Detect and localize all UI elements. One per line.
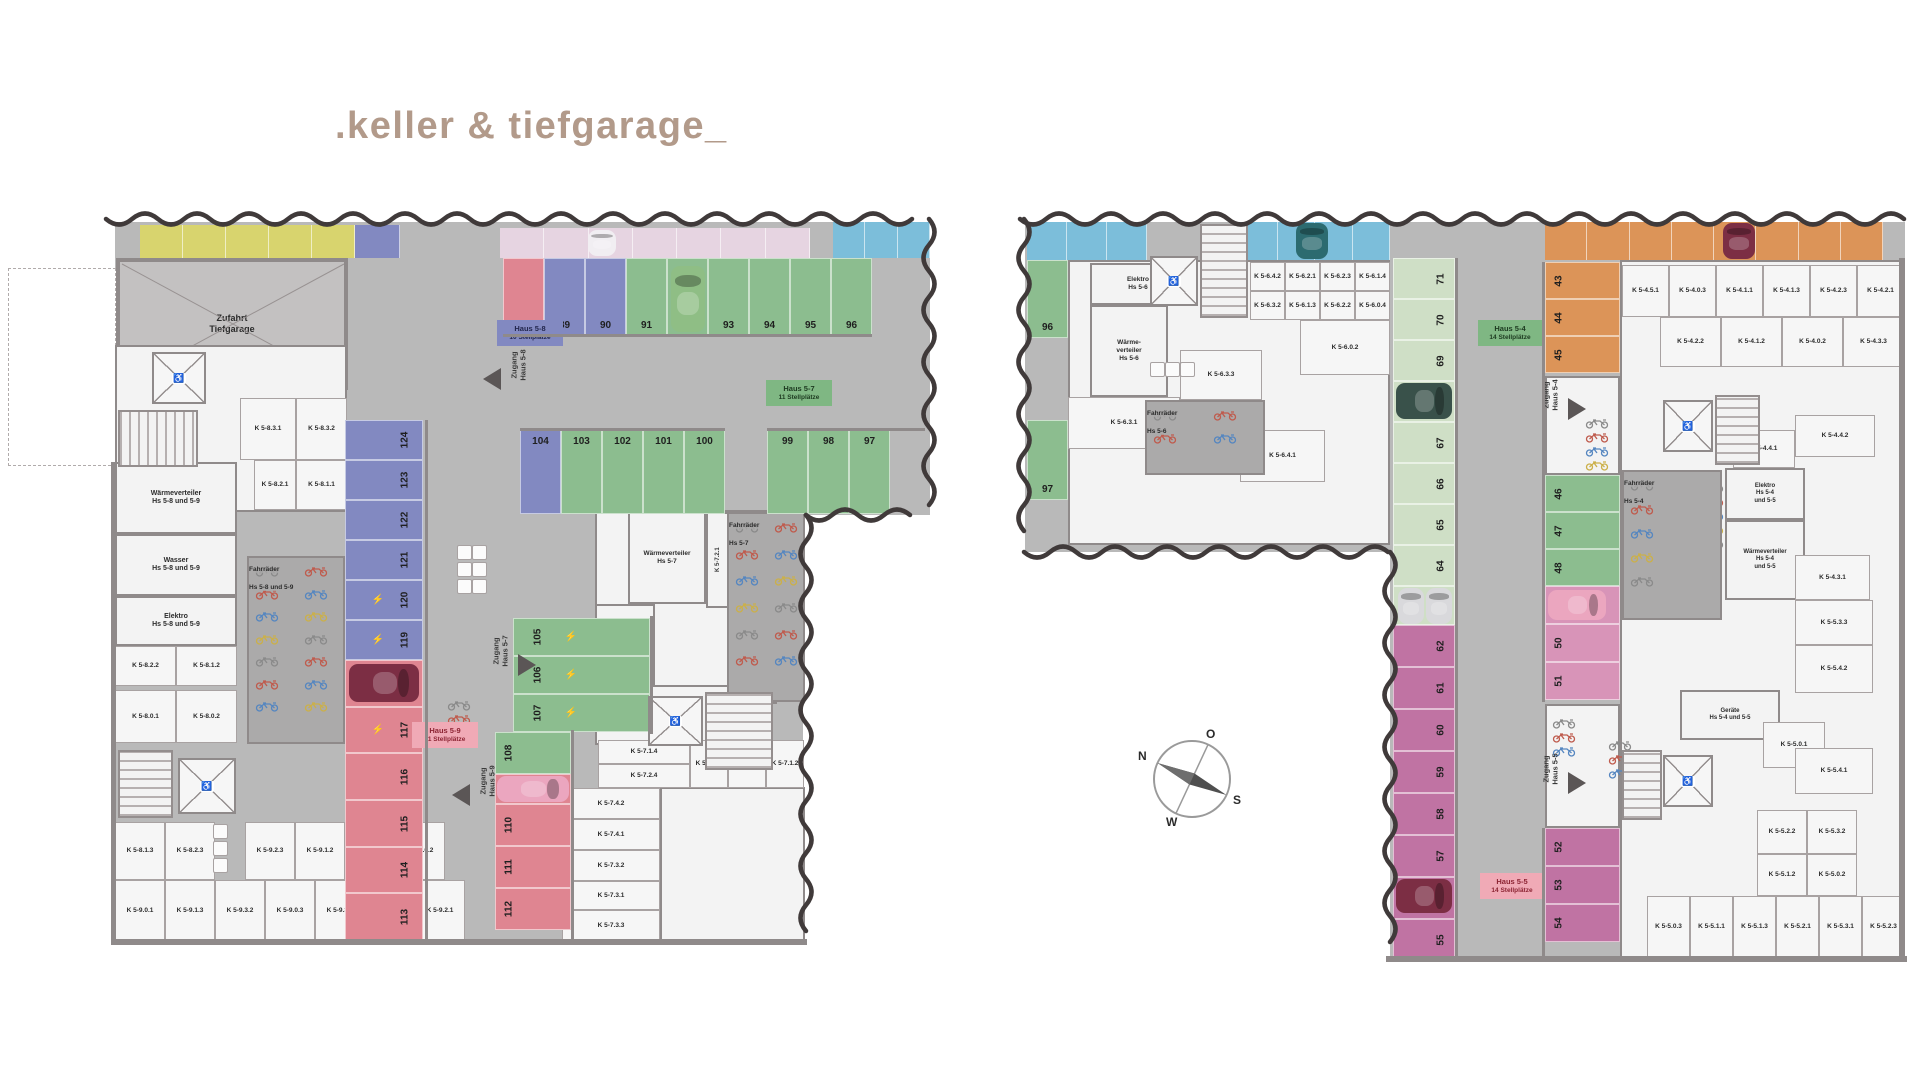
wheelchair-icon: ♿: [172, 373, 185, 384]
cut-line-waves: [0, 0, 1920, 1080]
floor-plan-page: .keller & tiefgarage_ N O S W Zufahrt Ti…: [0, 0, 1920, 1080]
wheelchair-icon: ♿: [1167, 276, 1180, 287]
wheelchair-icon: ♿: [1681, 776, 1694, 787]
wheelchair-icon: ♿: [669, 716, 682, 727]
wheelchair-icon: ♿: [200, 781, 213, 792]
wheelchair-icon: ♿: [1681, 421, 1694, 432]
